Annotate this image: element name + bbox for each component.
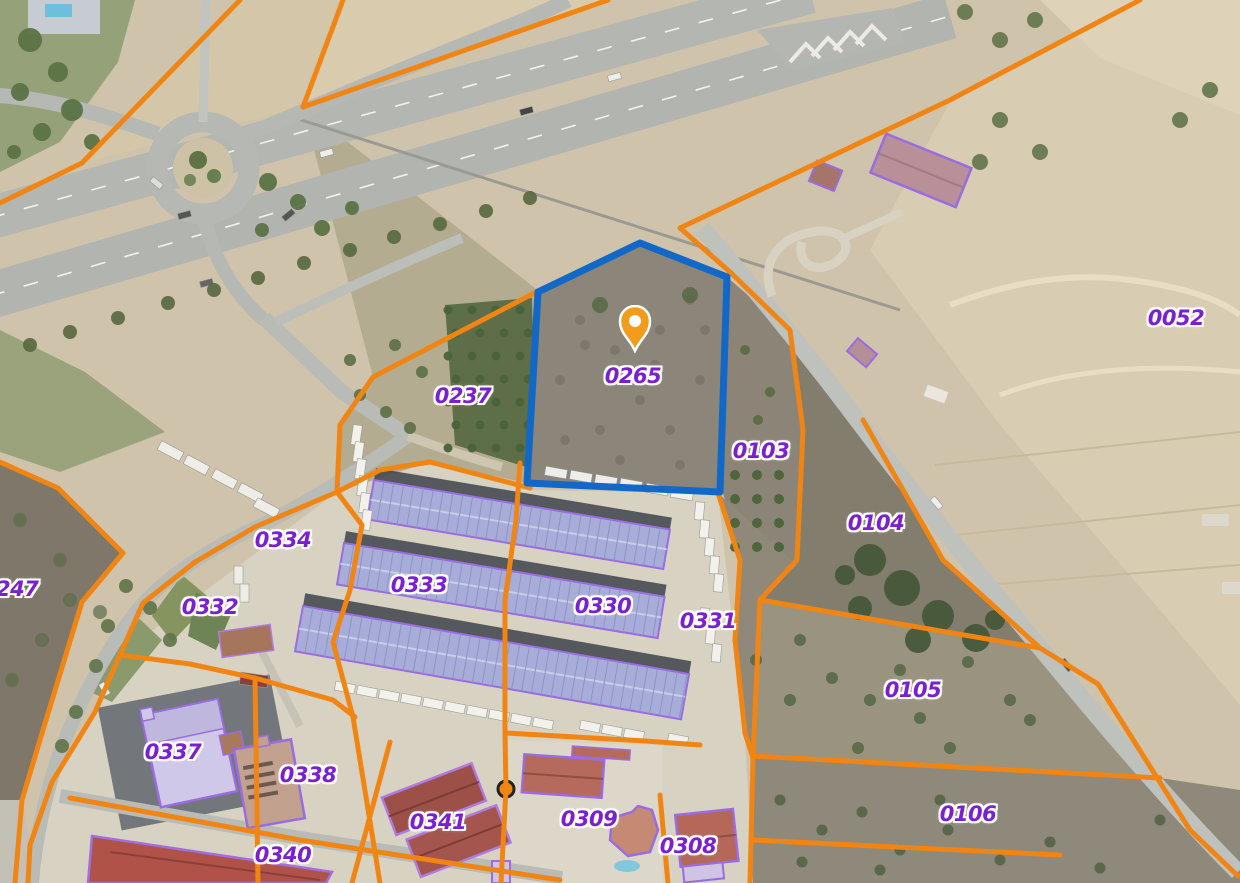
- parcel-label-247[interactable]: 247: [0, 577, 38, 601]
- parcel-label-0332[interactable]: 0332: [182, 595, 238, 619]
- parcel-label-0308[interactable]: 0308: [660, 834, 716, 858]
- parcel-label-0265[interactable]: 0265: [605, 364, 661, 388]
- map-viewport[interactable]: 0052023702650103010403340332033303300331…: [0, 0, 1240, 883]
- parcel-label-0331[interactable]: 0331: [680, 609, 736, 633]
- parcel-label-0106[interactable]: 0106: [940, 802, 996, 826]
- parcel-label-0333[interactable]: 0333: [391, 573, 447, 597]
- parcel-label-0330[interactable]: 0330: [575, 594, 631, 618]
- parcel-label-0309[interactable]: 0309: [561, 807, 617, 831]
- parcel-label-0103[interactable]: 0103: [733, 439, 789, 463]
- parcel-label-0052[interactable]: 0052: [1148, 306, 1204, 330]
- parcel-label-0105[interactable]: 0105: [885, 678, 941, 702]
- parcel-label-0104[interactable]: 0104: [848, 511, 904, 535]
- parcel-label-0237[interactable]: 0237: [435, 384, 491, 408]
- parcel-label-0340[interactable]: 0340: [255, 843, 311, 867]
- parcel-label-0341[interactable]: 0341: [410, 810, 466, 834]
- parcel-label-0337[interactable]: 0337: [145, 740, 201, 764]
- parcel-label-0334[interactable]: 0334: [255, 528, 311, 552]
- parcel-label-0338[interactable]: 0338: [280, 763, 336, 787]
